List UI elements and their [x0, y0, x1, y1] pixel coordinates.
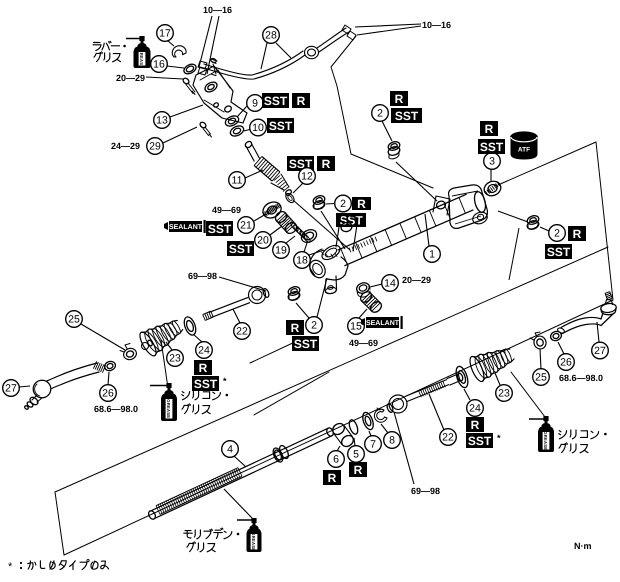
svg-text:GREASE: GREASE	[139, 49, 144, 68]
svg-text:28: 28	[265, 30, 277, 42]
svg-text:R: R	[357, 197, 366, 211]
svg-text:SST: SST	[468, 434, 492, 448]
svg-text:21: 21	[240, 220, 252, 232]
svg-text:17: 17	[159, 28, 171, 40]
svg-text:49—69: 49—69	[212, 205, 241, 215]
svg-text:SEALANT: SEALANT	[366, 320, 400, 327]
svg-text:SST: SST	[294, 337, 318, 351]
svg-text:GREASE: GREASE	[251, 532, 256, 551]
svg-text:22: 22	[442, 432, 454, 444]
svg-text:25: 25	[68, 314, 80, 326]
svg-text:2: 2	[311, 320, 317, 332]
svg-text:SST: SST	[229, 242, 253, 256]
svg-text:4: 4	[227, 444, 233, 456]
svg-text:R: R	[485, 122, 494, 136]
svg-text:2: 2	[377, 108, 383, 120]
svg-text:GREASE: GREASE	[166, 399, 171, 418]
svg-text:2: 2	[554, 228, 560, 240]
svg-text:R: R	[354, 463, 363, 477]
svg-text:12: 12	[301, 171, 313, 183]
svg-text:24: 24	[198, 345, 210, 357]
svg-text:27: 27	[5, 383, 17, 395]
svg-text:68.6—98.0: 68.6—98.0	[559, 373, 603, 383]
svg-text:23: 23	[169, 353, 181, 365]
svg-text:SST: SST	[264, 94, 288, 108]
svg-text:5: 5	[353, 449, 359, 461]
svg-text:GREASE: GREASE	[543, 431, 548, 450]
svg-text:20—29: 20—29	[116, 73, 145, 83]
svg-text:69—98: 69—98	[188, 271, 217, 281]
svg-text:19: 19	[275, 245, 287, 257]
svg-text:N·m: N·m	[574, 541, 592, 551]
svg-text:8: 8	[389, 435, 395, 447]
svg-text:6: 6	[333, 454, 339, 466]
svg-text:ATF: ATF	[518, 147, 530, 154]
svg-text:24: 24	[469, 403, 481, 415]
svg-text:10—16: 10—16	[422, 20, 451, 30]
svg-text:SST: SST	[208, 222, 232, 236]
svg-text:SEALANT: SEALANT	[169, 224, 203, 231]
svg-text:49—69: 49—69	[349, 338, 378, 348]
svg-text:22: 22	[236, 326, 248, 338]
svg-text:R: R	[322, 157, 331, 171]
svg-text:7: 7	[370, 439, 376, 451]
svg-text:R: R	[291, 321, 300, 335]
svg-text:2: 2	[340, 198, 346, 210]
svg-text:R: R	[573, 227, 582, 241]
svg-text:1: 1	[429, 249, 435, 261]
svg-text:R: R	[199, 361, 208, 375]
svg-text:10—16: 10—16	[203, 5, 232, 15]
svg-text:SST: SST	[480, 140, 504, 154]
svg-text:SST: SST	[194, 377, 218, 391]
svg-text:*: *	[8, 561, 13, 573]
svg-text:24—29: 24—29	[111, 141, 140, 151]
svg-text:68.6—98.0: 68.6—98.0	[94, 404, 138, 414]
svg-text:26: 26	[102, 388, 114, 400]
svg-text:20—29: 20—29	[402, 275, 431, 285]
svg-text:R: R	[297, 94, 306, 108]
svg-text:9: 9	[252, 98, 258, 110]
svg-text:R: R	[471, 418, 480, 432]
svg-text:18: 18	[296, 255, 308, 267]
svg-text:15: 15	[350, 321, 362, 333]
svg-text:14: 14	[384, 278, 396, 290]
svg-text:SST: SST	[547, 245, 571, 259]
svg-text:11: 11	[232, 175, 243, 187]
svg-text:69—98: 69—98	[411, 486, 440, 496]
svg-text:25: 25	[535, 372, 547, 384]
svg-text:26: 26	[560, 357, 572, 369]
svg-text:3: 3	[489, 156, 495, 168]
svg-text:13: 13	[156, 115, 168, 127]
svg-text:10: 10	[252, 122, 264, 134]
svg-text:SST: SST	[395, 109, 419, 123]
svg-text:R: R	[395, 92, 404, 106]
svg-text:R: R	[328, 471, 337, 485]
svg-text:SST: SST	[269, 119, 293, 133]
svg-text:29: 29	[149, 141, 161, 153]
svg-text:27: 27	[594, 345, 606, 357]
svg-text:20: 20	[257, 235, 269, 247]
svg-text:16: 16	[153, 59, 165, 71]
svg-text:*: *	[497, 433, 501, 443]
svg-text:*: *	[223, 376, 227, 386]
svg-text:23: 23	[498, 388, 510, 400]
